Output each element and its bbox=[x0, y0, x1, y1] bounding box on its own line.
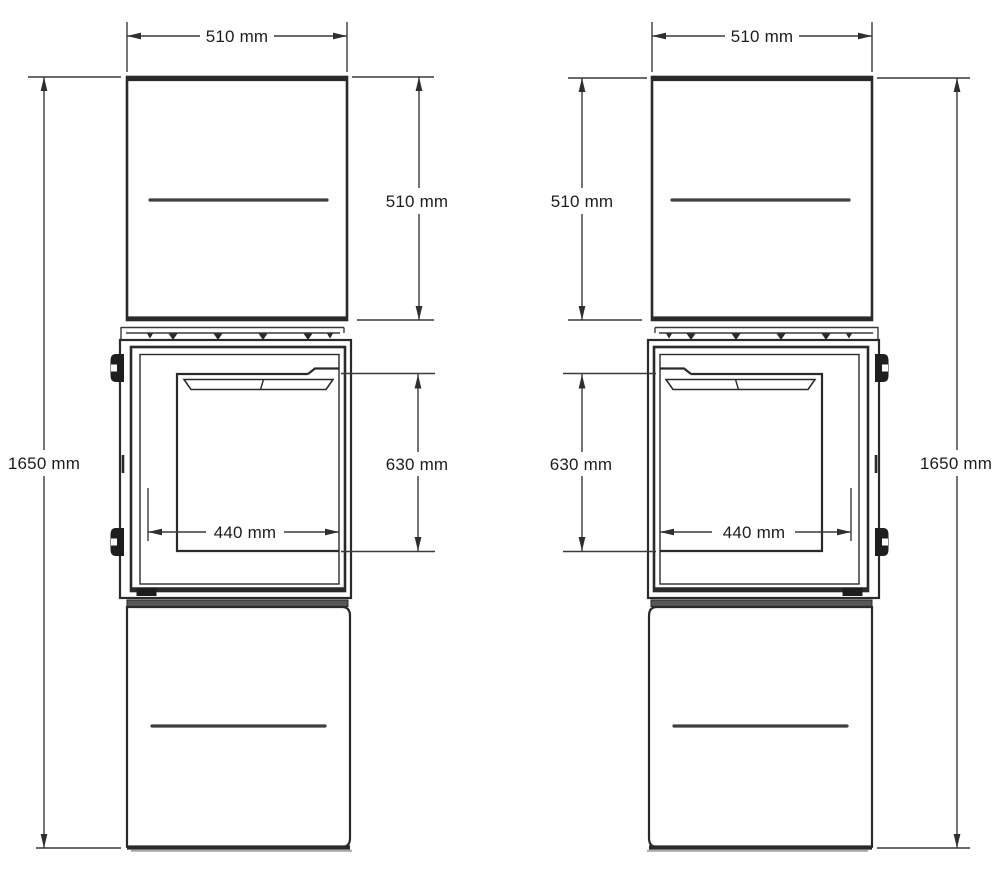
door-handle-left bbox=[184, 380, 333, 390]
dim-label-glass-width-left: 440 mm bbox=[214, 523, 277, 542]
stove-dimension-drawing: 510 mm 510 mm 630 mm 440 mm 1650 mm bbox=[0, 0, 1000, 877]
dim-label-overall-height-right: 1650 mm bbox=[920, 454, 992, 473]
dim-upper-height-left: 510 mm bbox=[352, 77, 448, 320]
dim-label-upper-height-left: 510 mm bbox=[386, 192, 449, 211]
dim-door-height-left: 630 mm bbox=[341, 374, 448, 552]
hinge-top-notch-right bbox=[882, 365, 888, 372]
dim-label-overall-height-left: 1650 mm bbox=[8, 454, 80, 473]
dim-label-door-height-right: 630 mm bbox=[550, 455, 613, 474]
dim-overall-width-right: 510 mm bbox=[652, 22, 872, 72]
module-joint-strip-left bbox=[121, 327, 344, 340]
drawing-svg: 510 mm 510 mm 630 mm 440 mm 1650 mm bbox=[0, 0, 1000, 877]
dim-overall-height-left: 1650 mm bbox=[8, 77, 121, 848]
module-joint-strip-right bbox=[655, 327, 878, 340]
dim-label-door-height-left: 630 mm bbox=[386, 455, 449, 474]
door-latch-block-right bbox=[843, 588, 863, 597]
dim-door-height-right: 630 mm bbox=[550, 374, 656, 552]
hinge-bottom-notch-left bbox=[111, 539, 117, 546]
dim-label-overall-width-right: 510 mm bbox=[731, 27, 794, 46]
dim-upper-height-right: 510 mm bbox=[551, 78, 647, 320]
hinge-top-notch-left bbox=[111, 365, 117, 372]
stove-front-view-left bbox=[111, 77, 353, 851]
dim-overall-height-right: 1650 mm bbox=[877, 78, 992, 848]
dim-label-overall-width-left: 510 mm bbox=[206, 27, 269, 46]
dim-label-glass-width-right: 440 mm bbox=[723, 523, 786, 542]
dim-overall-width-left: 510 mm bbox=[127, 22, 347, 72]
dim-label-upper-height-right: 510 mm bbox=[551, 192, 614, 211]
stove-front-view-right bbox=[647, 77, 889, 851]
hinge-bottom-notch-right bbox=[882, 539, 888, 546]
door-latch-block-left bbox=[137, 588, 157, 597]
base-joint-strip-right bbox=[651, 600, 872, 607]
base-joint-strip-left bbox=[127, 600, 348, 607]
door-handle-right bbox=[666, 380, 815, 390]
